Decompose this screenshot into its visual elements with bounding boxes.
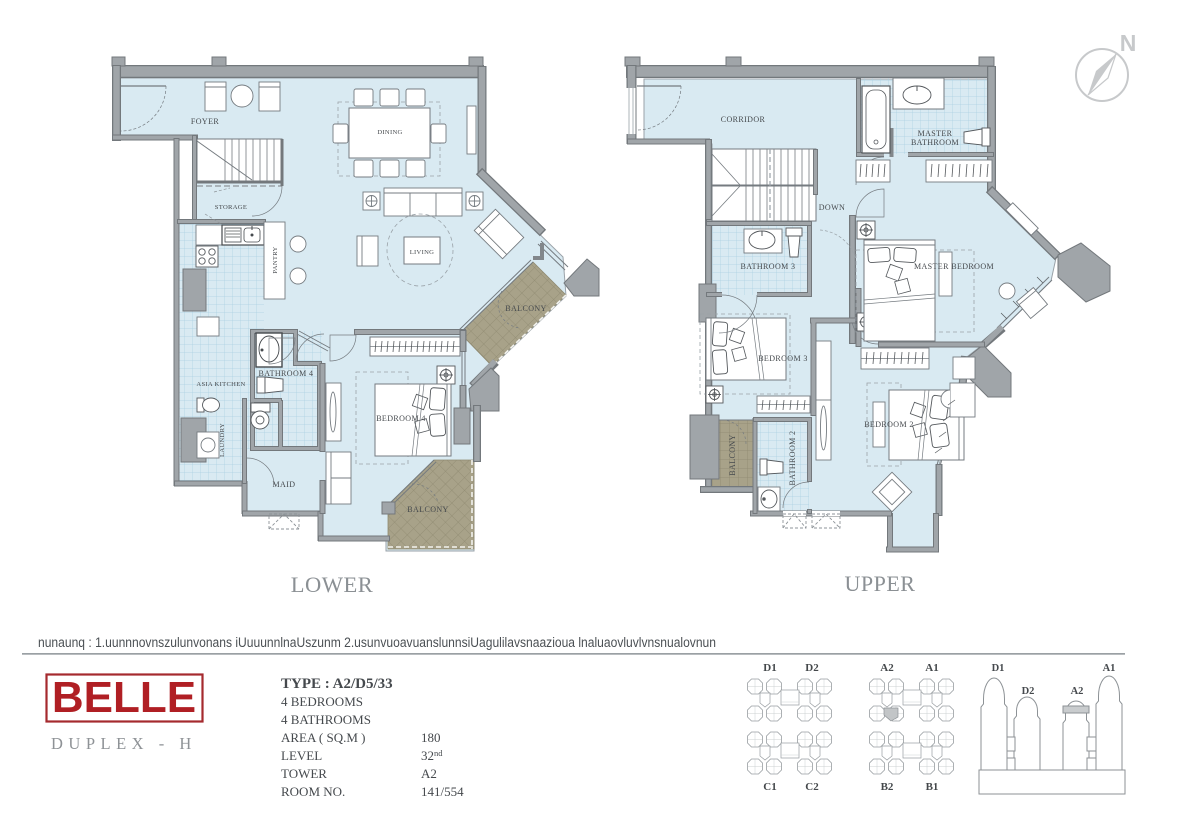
svg-text:A1: A1 xyxy=(925,662,938,674)
svg-text:TYPE : A2/D5/33: TYPE : A2/D5/33 xyxy=(281,676,393,692)
svg-text:B2: B2 xyxy=(881,781,894,793)
svg-text:BELLE: BELLE xyxy=(52,673,196,722)
svg-text:BALCONY: BALCONY xyxy=(505,304,546,313)
svg-text:BEDROOM 2: BEDROOM 2 xyxy=(864,420,914,429)
svg-text:FOYER: FOYER xyxy=(191,117,219,126)
svg-text:BEDROOM 4: BEDROOM 4 xyxy=(376,414,426,423)
svg-text:BEDROOM 3: BEDROOM 3 xyxy=(758,354,808,363)
svg-text:A2: A2 xyxy=(880,662,894,674)
svg-text:B1: B1 xyxy=(926,781,939,793)
svg-text:32nd: 32nd xyxy=(421,748,443,763)
svg-text:4 BEDROOMS: 4 BEDROOMS xyxy=(281,694,363,709)
svg-text:D2: D2 xyxy=(805,662,819,674)
svg-text:MASTER: MASTER xyxy=(918,129,953,138)
svg-text:DOWN: DOWN xyxy=(819,203,845,212)
svg-text:C2: C2 xyxy=(805,781,819,793)
svg-text:C1: C1 xyxy=(763,781,776,793)
svg-text:MASTER BEDROOM: MASTER BEDROOM xyxy=(914,262,994,271)
svg-text:BATHROOM 4: BATHROOM 4 xyxy=(259,369,314,378)
svg-text:D2: D2 xyxy=(1022,686,1035,697)
svg-text:PANTRY: PANTRY xyxy=(272,246,279,273)
svg-text:4 BATHROOMS: 4 BATHROOMS xyxy=(281,712,371,727)
svg-text:STORAGE: STORAGE xyxy=(215,204,247,211)
svg-text:CORRIDOR: CORRIDOR xyxy=(721,115,766,124)
svg-text:UPPER: UPPER xyxy=(845,571,916,596)
svg-text:AREA ( SQ.M ): AREA ( SQ.M ) xyxy=(281,730,366,745)
svg-text:A2: A2 xyxy=(421,766,437,781)
svg-text:A1: A1 xyxy=(1103,663,1116,674)
svg-text:BATHROOM: BATHROOM xyxy=(911,138,959,147)
svg-text:180: 180 xyxy=(421,730,441,745)
svg-text:D1: D1 xyxy=(763,662,776,674)
svg-text:BATHROOM 2: BATHROOM 2 xyxy=(788,431,797,486)
svg-text:BATHROOM 3: BATHROOM 3 xyxy=(741,262,796,271)
svg-text:DINING: DINING xyxy=(377,129,402,136)
svg-text:LEVEL: LEVEL xyxy=(281,748,322,763)
svg-text:141/554: 141/554 xyxy=(421,784,464,799)
svg-text:ROOM NO.: ROOM NO. xyxy=(281,784,345,799)
svg-text:D1: D1 xyxy=(992,663,1005,674)
svg-text:DUPLEX - H: DUPLEX - H xyxy=(51,734,197,753)
svg-text:LOWER: LOWER xyxy=(291,572,373,597)
svg-text:ASIA KITCHEN: ASIA KITCHEN xyxy=(196,381,245,388)
svg-text:LIVING: LIVING xyxy=(410,249,435,256)
svg-text:BALCONY: BALCONY xyxy=(407,505,448,514)
svg-text:BALCONY: BALCONY xyxy=(728,434,737,475)
svg-text:A2: A2 xyxy=(1071,686,1084,697)
svg-text:MAID: MAID xyxy=(273,480,296,489)
svg-text:nunaunq : 1.uunnnovnszulunvona: nunaunq : 1.uunnnovnszulunvonans iUuuunn… xyxy=(38,635,716,650)
svg-text:N: N xyxy=(1120,30,1137,56)
svg-text:LAUNDRY: LAUNDRY xyxy=(219,423,226,457)
svg-text:TOWER: TOWER xyxy=(281,766,327,781)
